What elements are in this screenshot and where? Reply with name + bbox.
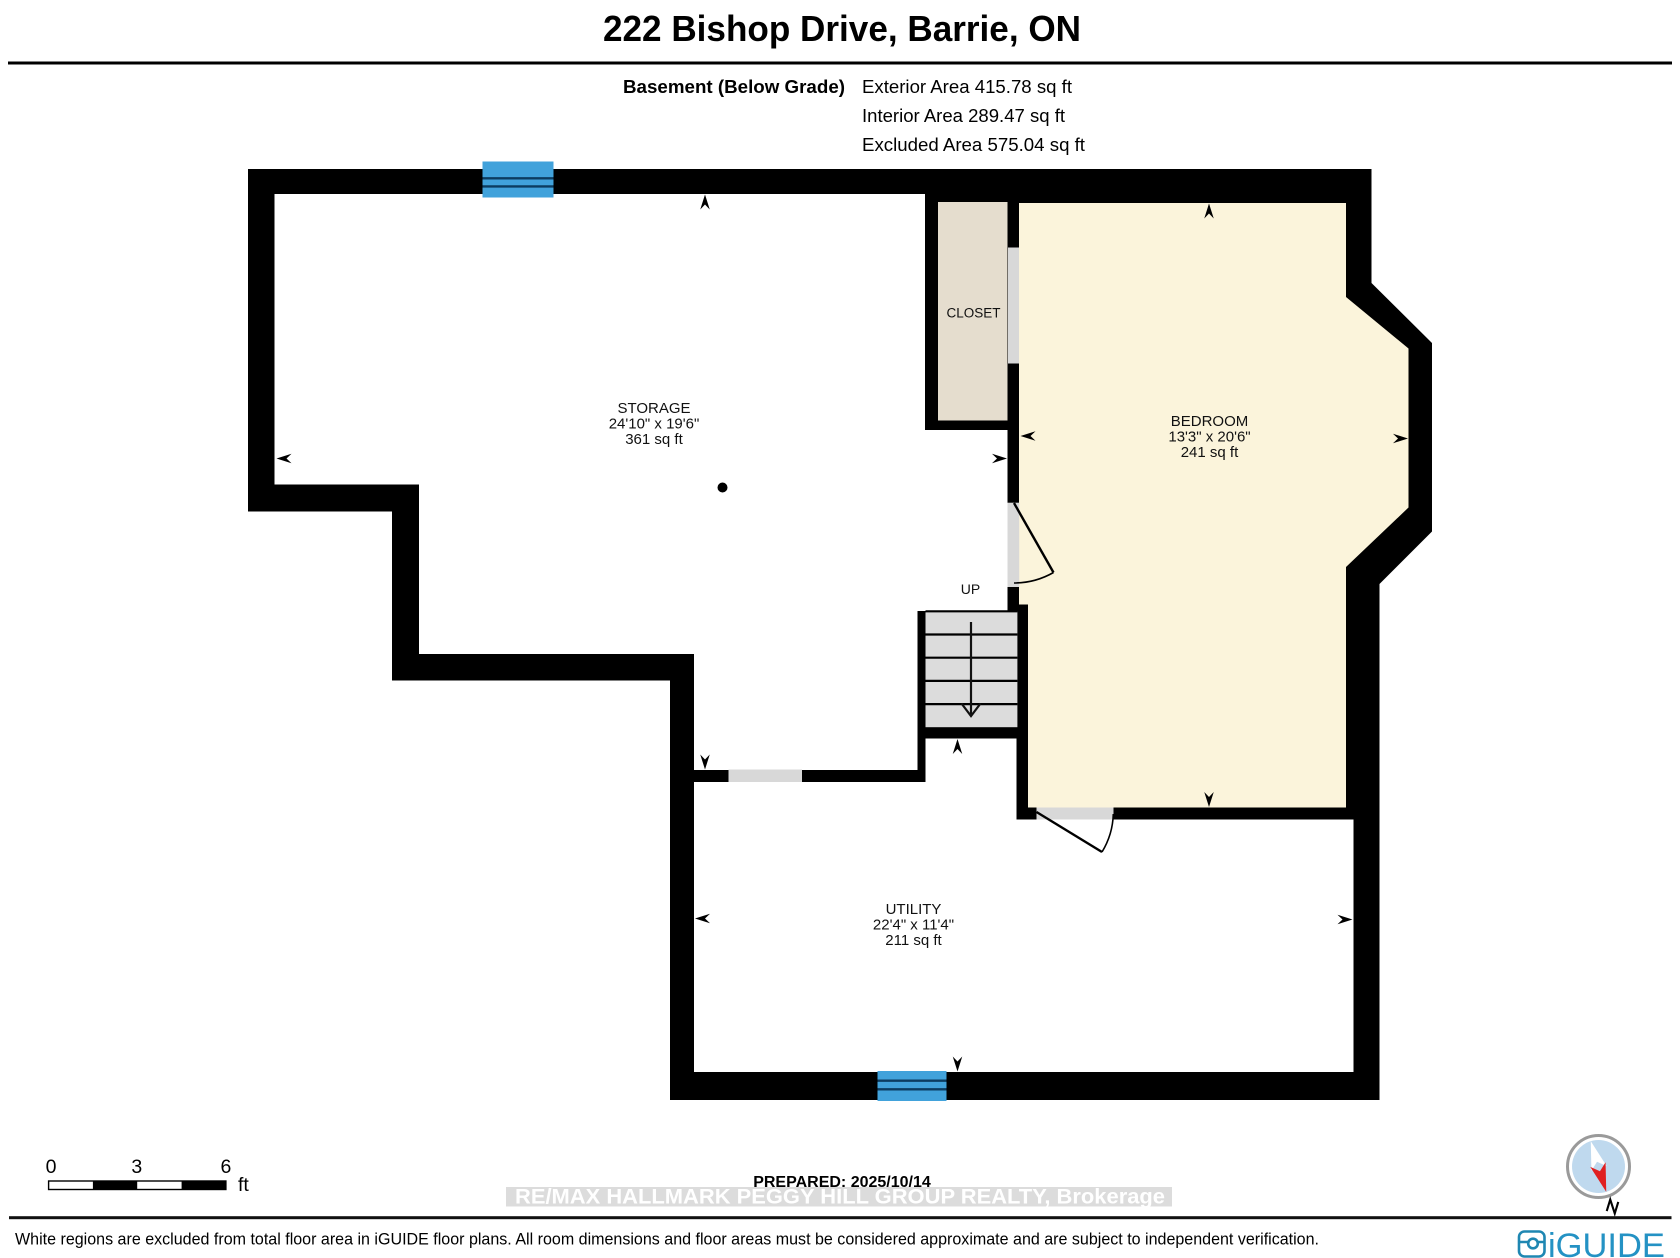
svg-text:BEDROOM: BEDROOM [1171, 413, 1249, 430]
svg-text:361 sq ft: 361 sq ft [625, 431, 683, 448]
svg-text:iGUIDE: iGUIDE [1548, 1227, 1665, 1258]
svg-text:UP: UP [961, 581, 980, 597]
svg-text:White regions are excluded fro: White regions are excluded from total fl… [15, 1230, 1319, 1249]
svg-text:Exterior Area 415.78 sq ft: Exterior Area 415.78 sq ft [862, 77, 1072, 97]
svg-text:222 Bishop Drive, Barrie, ON: 222 Bishop Drive, Barrie, ON [603, 8, 1081, 49]
svg-text:211 sq ft: 211 sq ft [885, 932, 942, 949]
svg-text:6: 6 [220, 1156, 231, 1178]
svg-text:24'10" x 19'6": 24'10" x 19'6" [609, 416, 700, 433]
svg-text:3: 3 [131, 1156, 142, 1178]
svg-text:CLOSET: CLOSET [946, 306, 1000, 321]
svg-text:ft: ft [238, 1174, 249, 1196]
svg-text:22'4" x 11'4": 22'4" x 11'4" [873, 917, 954, 934]
svg-text:Basement (Below Grade): Basement (Below Grade) [623, 77, 845, 97]
svg-text:241 sq ft: 241 sq ft [1181, 444, 1239, 461]
svg-text:13'3" x 20'6": 13'3" x 20'6" [1168, 429, 1250, 446]
svg-text:UTILITY: UTILITY [886, 901, 942, 918]
svg-text:Excluded Area 575.04 sq ft: Excluded Area 575.04 sq ft [862, 135, 1085, 155]
svg-text:0: 0 [46, 1156, 57, 1178]
svg-text:RE/MAX HALLMARK PEGGY HILL GRO: RE/MAX HALLMARK PEGGY HILL GROUP REALTY,… [515, 1186, 1165, 1209]
svg-text:Interior Area 289.47 sq ft: Interior Area 289.47 sq ft [862, 106, 1065, 126]
svg-text:STORAGE: STORAGE [617, 400, 690, 417]
